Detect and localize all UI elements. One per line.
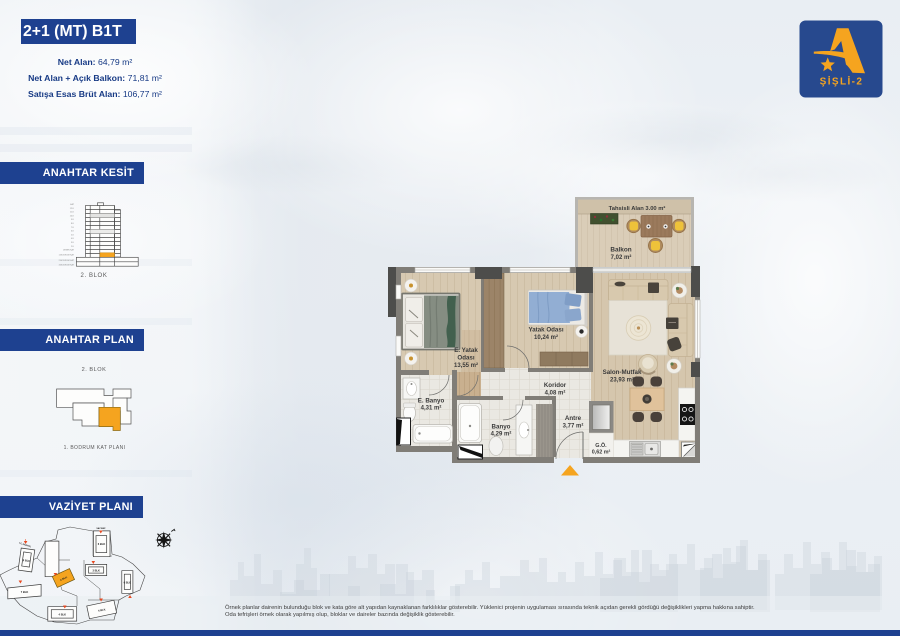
svg-text:Odası: Odası bbox=[457, 355, 474, 362]
svg-text:Banyo: Banyo bbox=[492, 424, 511, 431]
svg-text:Tahsisli Alan 3.00 m²: Tahsisli Alan 3.00 m² bbox=[609, 205, 666, 212]
svg-text:4,29 m²: 4,29 m² bbox=[491, 431, 512, 438]
svg-text:23,93 m²: 23,93 m² bbox=[610, 377, 634, 384]
svg-text:Balkon: Balkon bbox=[610, 247, 631, 254]
svg-text:7,02 m²: 7,02 m² bbox=[611, 254, 632, 261]
svg-text:E. Yatak: E. Yatak bbox=[454, 347, 478, 354]
svg-text:E. Banyo: E. Banyo bbox=[418, 398, 445, 405]
svg-text:Yatak Odası: Yatak Odası bbox=[528, 327, 563, 334]
svg-text:Salon-Mutfak: Salon-Mutfak bbox=[603, 369, 642, 376]
svg-text:13,55 m²: 13,55 m² bbox=[454, 362, 478, 369]
svg-text:4,08 m²: 4,08 m² bbox=[545, 390, 566, 397]
svg-text:Antre: Antre bbox=[565, 415, 582, 422]
svg-text:10,24 m²: 10,24 m² bbox=[534, 334, 558, 341]
svg-text:4,31 m²: 4,31 m² bbox=[421, 405, 442, 412]
svg-text:3,77 m²: 3,77 m² bbox=[563, 423, 584, 430]
svg-text:0,62 m²: 0,62 m² bbox=[592, 450, 611, 456]
svg-text:G.Ö.: G.Ö. bbox=[595, 442, 607, 449]
svg-text:Koridor: Koridor bbox=[544, 382, 567, 389]
